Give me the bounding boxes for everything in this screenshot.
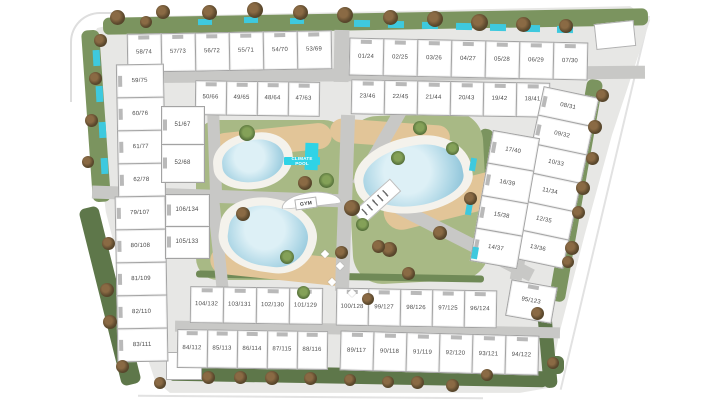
palm-tree-icon bbox=[280, 250, 294, 264]
unit-06-29: 06/29 bbox=[518, 41, 554, 80]
tree-icon bbox=[516, 17, 531, 32]
tree-icon bbox=[335, 246, 348, 259]
tree-icon bbox=[234, 371, 247, 384]
tree-icon bbox=[433, 226, 447, 240]
tree-icon bbox=[411, 376, 424, 389]
tree-icon bbox=[471, 14, 488, 31]
tree-icon bbox=[562, 256, 574, 268]
tree-icon bbox=[304, 372, 317, 385]
unit-49-65: 49/65 bbox=[225, 80, 257, 115]
unit-20-43: 20/43 bbox=[449, 80, 484, 116]
unit-01-24: 01/24 bbox=[348, 37, 384, 76]
unit-105-133: 105/133 bbox=[165, 226, 210, 259]
site-plan: CLIMATE POOL GYM 58/7457/7356/7255/7154/… bbox=[0, 0, 720, 405]
tree-icon bbox=[85, 114, 98, 127]
tree-icon bbox=[89, 72, 102, 85]
tree-icon bbox=[100, 283, 114, 297]
unit-88-116: 88/116 bbox=[296, 330, 328, 369]
unit-97-125: 97/125 bbox=[431, 289, 465, 328]
palm-tree-icon bbox=[297, 286, 310, 299]
tree-icon bbox=[372, 240, 385, 253]
tree-icon bbox=[596, 89, 609, 102]
unit-84-112: 84/112 bbox=[176, 328, 208, 367]
palm-tree-icon bbox=[239, 125, 255, 141]
unit-group-left-column-lower-inner: 106/134105/133 bbox=[165, 194, 209, 258]
tree-icon bbox=[481, 369, 493, 381]
tree-icon bbox=[154, 377, 166, 389]
unit-21-44: 21/44 bbox=[416, 80, 451, 116]
tree-icon bbox=[572, 206, 585, 219]
unit-02-25: 02/25 bbox=[382, 38, 418, 77]
palm-tree-icon bbox=[413, 121, 427, 135]
unit-81-109: 81/109 bbox=[115, 261, 167, 296]
unit-group-left-column-upper: 59/7560/7661/7762/78 bbox=[116, 64, 165, 197]
tree-icon bbox=[337, 7, 353, 23]
tree-icon bbox=[588, 120, 602, 134]
unit-55-71: 55/71 bbox=[228, 31, 264, 71]
unit-99-127: 99/127 bbox=[367, 288, 401, 327]
unit-group-bottom-outer-row-right: 89/11790/11891/11992/12093/12194/122 bbox=[340, 330, 539, 374]
unit-87-115: 87/115 bbox=[266, 330, 298, 369]
unit-07-30: 07/30 bbox=[552, 41, 588, 80]
plunge-pool bbox=[99, 122, 107, 138]
unit-57-73: 57/73 bbox=[160, 32, 196, 72]
plunge-pool bbox=[96, 86, 104, 102]
tree-icon bbox=[265, 371, 279, 385]
unit-60-76: 60/76 bbox=[116, 96, 165, 131]
tree-icon bbox=[156, 5, 170, 19]
tree-icon bbox=[446, 379, 459, 392]
unit-56-72: 56/72 bbox=[194, 31, 230, 71]
unit-group-bottom-inner-row-right: 100/12899/12798/12697/12596/124 bbox=[336, 288, 497, 328]
tree-icon bbox=[82, 156, 94, 168]
tree-icon bbox=[402, 267, 415, 280]
unit-104-132: 104/132 bbox=[189, 286, 224, 323]
plunge-pool bbox=[101, 158, 109, 174]
plunge-pool bbox=[198, 19, 212, 25]
unit-79-107: 79/107 bbox=[114, 195, 166, 230]
unit-23-46: 23/46 bbox=[350, 79, 385, 115]
unit-04-27: 04/27 bbox=[450, 39, 486, 78]
unit-48-64: 48/64 bbox=[256, 80, 288, 115]
unit-86-114: 86/114 bbox=[236, 329, 268, 368]
tree-icon bbox=[202, 371, 215, 384]
tree-icon bbox=[383, 10, 398, 25]
tree-icon bbox=[293, 5, 308, 20]
unit-106-134: 106/134 bbox=[165, 194, 210, 227]
unit-05-28: 05/28 bbox=[484, 40, 520, 79]
tree-icon bbox=[140, 16, 152, 28]
unit-59-75: 59/75 bbox=[115, 63, 164, 98]
unit-03-26: 03/26 bbox=[416, 38, 452, 77]
unit-52-68: 52/68 bbox=[161, 144, 205, 183]
climate-pool-label: CLIMATE POOL bbox=[284, 157, 320, 165]
tree-icon bbox=[576, 181, 590, 195]
palm-tree-icon bbox=[356, 218, 369, 231]
palm-tree-icon bbox=[446, 142, 459, 155]
unit-82-110: 82/110 bbox=[116, 294, 168, 329]
tree-icon bbox=[586, 152, 599, 165]
tree-icon bbox=[362, 293, 374, 305]
tree-icon bbox=[382, 376, 394, 388]
tree-icon bbox=[116, 360, 129, 373]
tree-icon bbox=[531, 307, 544, 320]
unit-98-126: 98/126 bbox=[399, 288, 433, 327]
unit-group-left-column-lower: 79/10780/10881/10982/11083/111 bbox=[115, 196, 168, 362]
unit-group-bottom-outer-row-left: 84/11285/11386/11487/11588/116 bbox=[177, 329, 328, 369]
unit-19-42: 19/42 bbox=[482, 81, 517, 117]
tree-icon bbox=[427, 11, 443, 27]
tree-icon bbox=[236, 207, 250, 221]
tree-icon bbox=[344, 374, 356, 386]
unit-102-130: 102/130 bbox=[255, 286, 290, 323]
tree-icon bbox=[247, 2, 263, 18]
building-top-right-corner bbox=[594, 20, 636, 50]
unit-83-111: 83/111 bbox=[116, 327, 168, 362]
tree-icon bbox=[547, 357, 559, 369]
unit-93-121: 93/121 bbox=[471, 333, 506, 374]
unit-92-120: 92/120 bbox=[438, 332, 473, 373]
unit-51-67: 51/67 bbox=[161, 106, 205, 145]
road-center-top bbox=[334, 30, 350, 82]
unit-80-108: 80/108 bbox=[115, 228, 167, 263]
unit-group-top-row-right: 01/2402/2503/2604/2705/2806/2907/30 bbox=[349, 38, 588, 80]
unit-22-45: 22/45 bbox=[383, 79, 418, 115]
unit-90-118: 90/118 bbox=[372, 331, 407, 372]
unit-62-78: 62/78 bbox=[117, 162, 166, 197]
tree-icon bbox=[344, 200, 360, 216]
plunge-pool bbox=[93, 50, 101, 66]
tree-icon bbox=[110, 10, 125, 25]
tree-icon bbox=[103, 315, 117, 329]
unit-group-left-column-inner: 51/6752/68 bbox=[161, 106, 204, 182]
unit-61-77: 61/77 bbox=[116, 129, 165, 164]
boundary-road-outline-bottom bbox=[138, 395, 483, 399]
unit-group-second-row-right: 23/4622/4521/4420/4319/4218/41 bbox=[351, 79, 550, 116]
unit-96-124: 96/124 bbox=[463, 289, 497, 328]
unit-94-122: 94/122 bbox=[504, 334, 539, 375]
unit-47-63: 47/63 bbox=[287, 81, 319, 116]
unit-54-70: 54/70 bbox=[262, 30, 298, 70]
unit-85-113: 85/113 bbox=[206, 329, 238, 368]
plunge-pool bbox=[456, 23, 472, 30]
unit-group-second-row-left: 50/6649/6548/6447/63 bbox=[195, 80, 319, 116]
tree-icon bbox=[565, 241, 579, 255]
unit-91-119: 91/119 bbox=[405, 332, 440, 373]
tree-icon bbox=[298, 176, 312, 190]
plunge-pool bbox=[490, 24, 506, 31]
tree-icon bbox=[559, 19, 573, 33]
tree-icon bbox=[102, 237, 115, 250]
unit-103-131: 103/131 bbox=[222, 286, 257, 323]
palm-tree-icon bbox=[319, 173, 334, 188]
tree-icon bbox=[202, 5, 217, 20]
palm-tree-icon bbox=[391, 151, 405, 165]
tree-icon bbox=[94, 34, 107, 47]
unit-53-69: 53/69 bbox=[296, 30, 332, 70]
plunge-pool bbox=[354, 20, 370, 27]
tree-icon bbox=[464, 192, 477, 205]
unit-89-117: 89/117 bbox=[339, 330, 374, 371]
